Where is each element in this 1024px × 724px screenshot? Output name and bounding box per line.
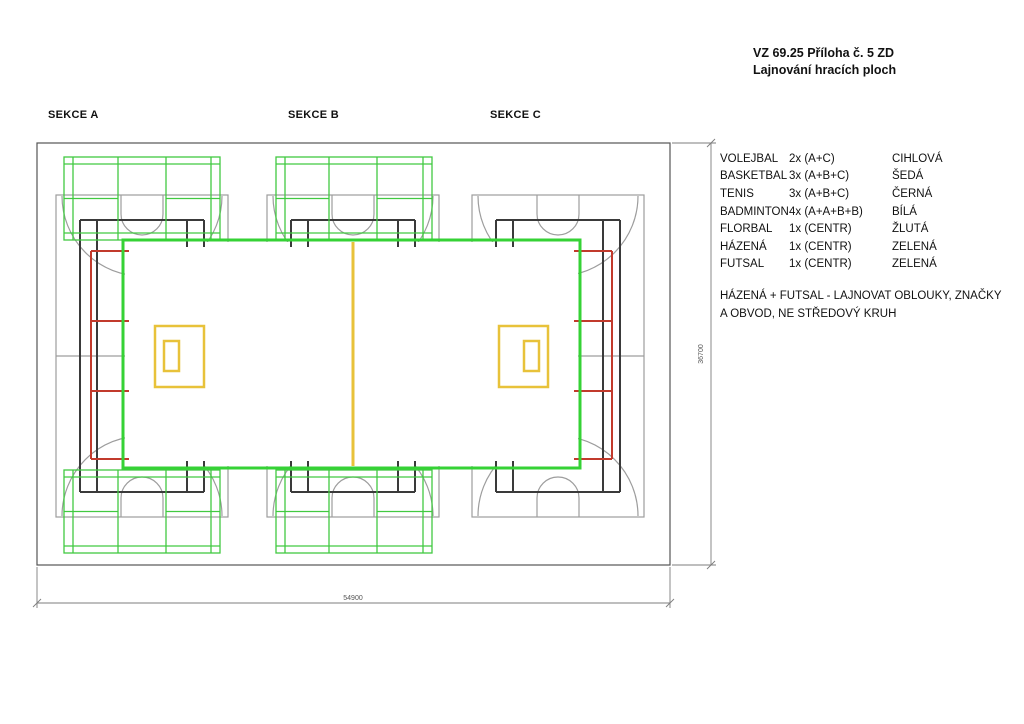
legend-sport: HÁZENÁ	[720, 241, 789, 253]
legend-row: BADMINTON 4x (A+A+B+B) BÍLÁ	[720, 203, 943, 221]
legend-sport: VOLEJBAL	[720, 153, 789, 165]
legend-color: BÍLÁ	[892, 206, 943, 218]
legend-row: FUTSAL 1x (CENTR) ZELENÁ	[720, 256, 943, 274]
legend-row: VOLEJBAL 2x (A+C) CIHLOVÁ	[720, 150, 943, 168]
legend-count: 3x (A+B+C)	[789, 170, 892, 182]
dimension-height	[672, 139, 716, 569]
legend-color: ČERNÁ	[892, 188, 943, 200]
legend-count: 1x (CENTR)	[789, 241, 892, 253]
legend-row: HÁZENÁ 1x (CENTR) ZELENÁ	[720, 238, 943, 256]
legend-color: ŽLUTÁ	[892, 223, 943, 235]
legend-count: 1x (CENTR)	[789, 258, 892, 270]
legend-sport: FUTSAL	[720, 258, 789, 270]
dimension-width-label: 54900	[343, 595, 363, 602]
legend-count: 3x (A+B+C)	[789, 188, 892, 200]
document-title-line1: VZ 69.25 Příloha č. 5 ZD	[753, 45, 896, 62]
legend-color: ZELENÁ	[892, 241, 943, 253]
legend-count: 2x (A+C)	[789, 153, 892, 165]
legend-row: FLORBAL 1x (CENTR) ŽLUTÁ	[720, 220, 943, 238]
page: { "title": { "line1": "VZ 69.25 Příloha …	[0, 0, 1024, 724]
legend-sport: BASKETBAL	[720, 170, 789, 182]
document-title-line2: Lajnování hracích ploch	[753, 62, 896, 79]
legend-sport: TENIS	[720, 188, 789, 200]
legend-color: CIHLOVÁ	[892, 153, 943, 165]
dimension-height-label: 36700	[698, 344, 705, 364]
note-line2: A OBVOD, NE STŘEDOVÝ KRUH	[720, 305, 1002, 323]
note-line1: HÁZENÁ + FUTSAL - LAJNOVAT OBLOUKY, ZNAČ…	[720, 287, 1002, 305]
section-label-a: SEKCE A	[48, 109, 99, 121]
section-label-b: SEKCE B	[288, 109, 339, 121]
legend-sport: BADMINTON	[720, 206, 789, 218]
legend-color: ŠEDÁ	[892, 170, 943, 182]
legend: VOLEJBAL 2x (A+C) CIHLOVÁ BASKETBAL 3x (…	[720, 150, 943, 273]
legend-count: 1x (CENTR)	[789, 223, 892, 235]
legend-count: 4x (A+A+B+B)	[789, 206, 892, 218]
legend-row: TENIS 3x (A+B+C) ČERNÁ	[720, 185, 943, 203]
legend-sport: FLORBAL	[720, 223, 789, 235]
note: HÁZENÁ + FUTSAL - LAJNOVAT OBLOUKY, ZNAČ…	[720, 287, 1002, 323]
legend-row: BASKETBAL 3x (A+B+C) ŠEDÁ	[720, 168, 943, 186]
document-title: VZ 69.25 Příloha č. 5 ZD Lajnování hrací…	[753, 45, 896, 79]
legend-color: ZELENÁ	[892, 258, 943, 270]
section-label-c: SEKCE C	[490, 109, 541, 121]
